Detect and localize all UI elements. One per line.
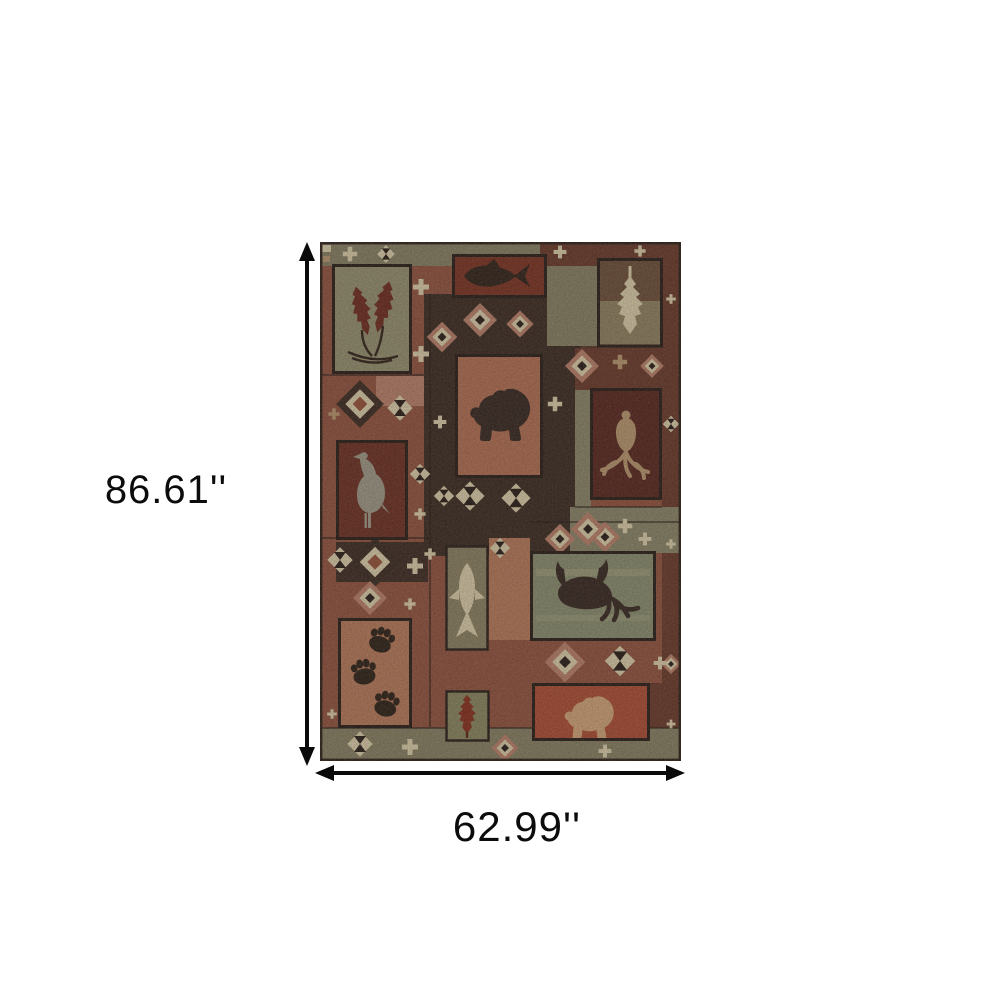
product-dimension-diagram: 86.61'' 62.99'' [0,0,1000,1000]
arrow-right-icon [666,765,685,781]
height-dimension-arrow [295,241,321,767]
fabric-texture-light [320,242,681,761]
rug-image [320,242,681,761]
arrow-left-icon [315,765,334,781]
rug-graphic [320,242,681,761]
height-dimension-label: 86.61'' [56,470,276,510]
width-dimension-arrow [314,760,686,786]
arrow-down-icon [299,747,315,766]
width-dimension-label: 62.99'' [367,806,667,848]
arrow-up-icon [299,242,315,261]
